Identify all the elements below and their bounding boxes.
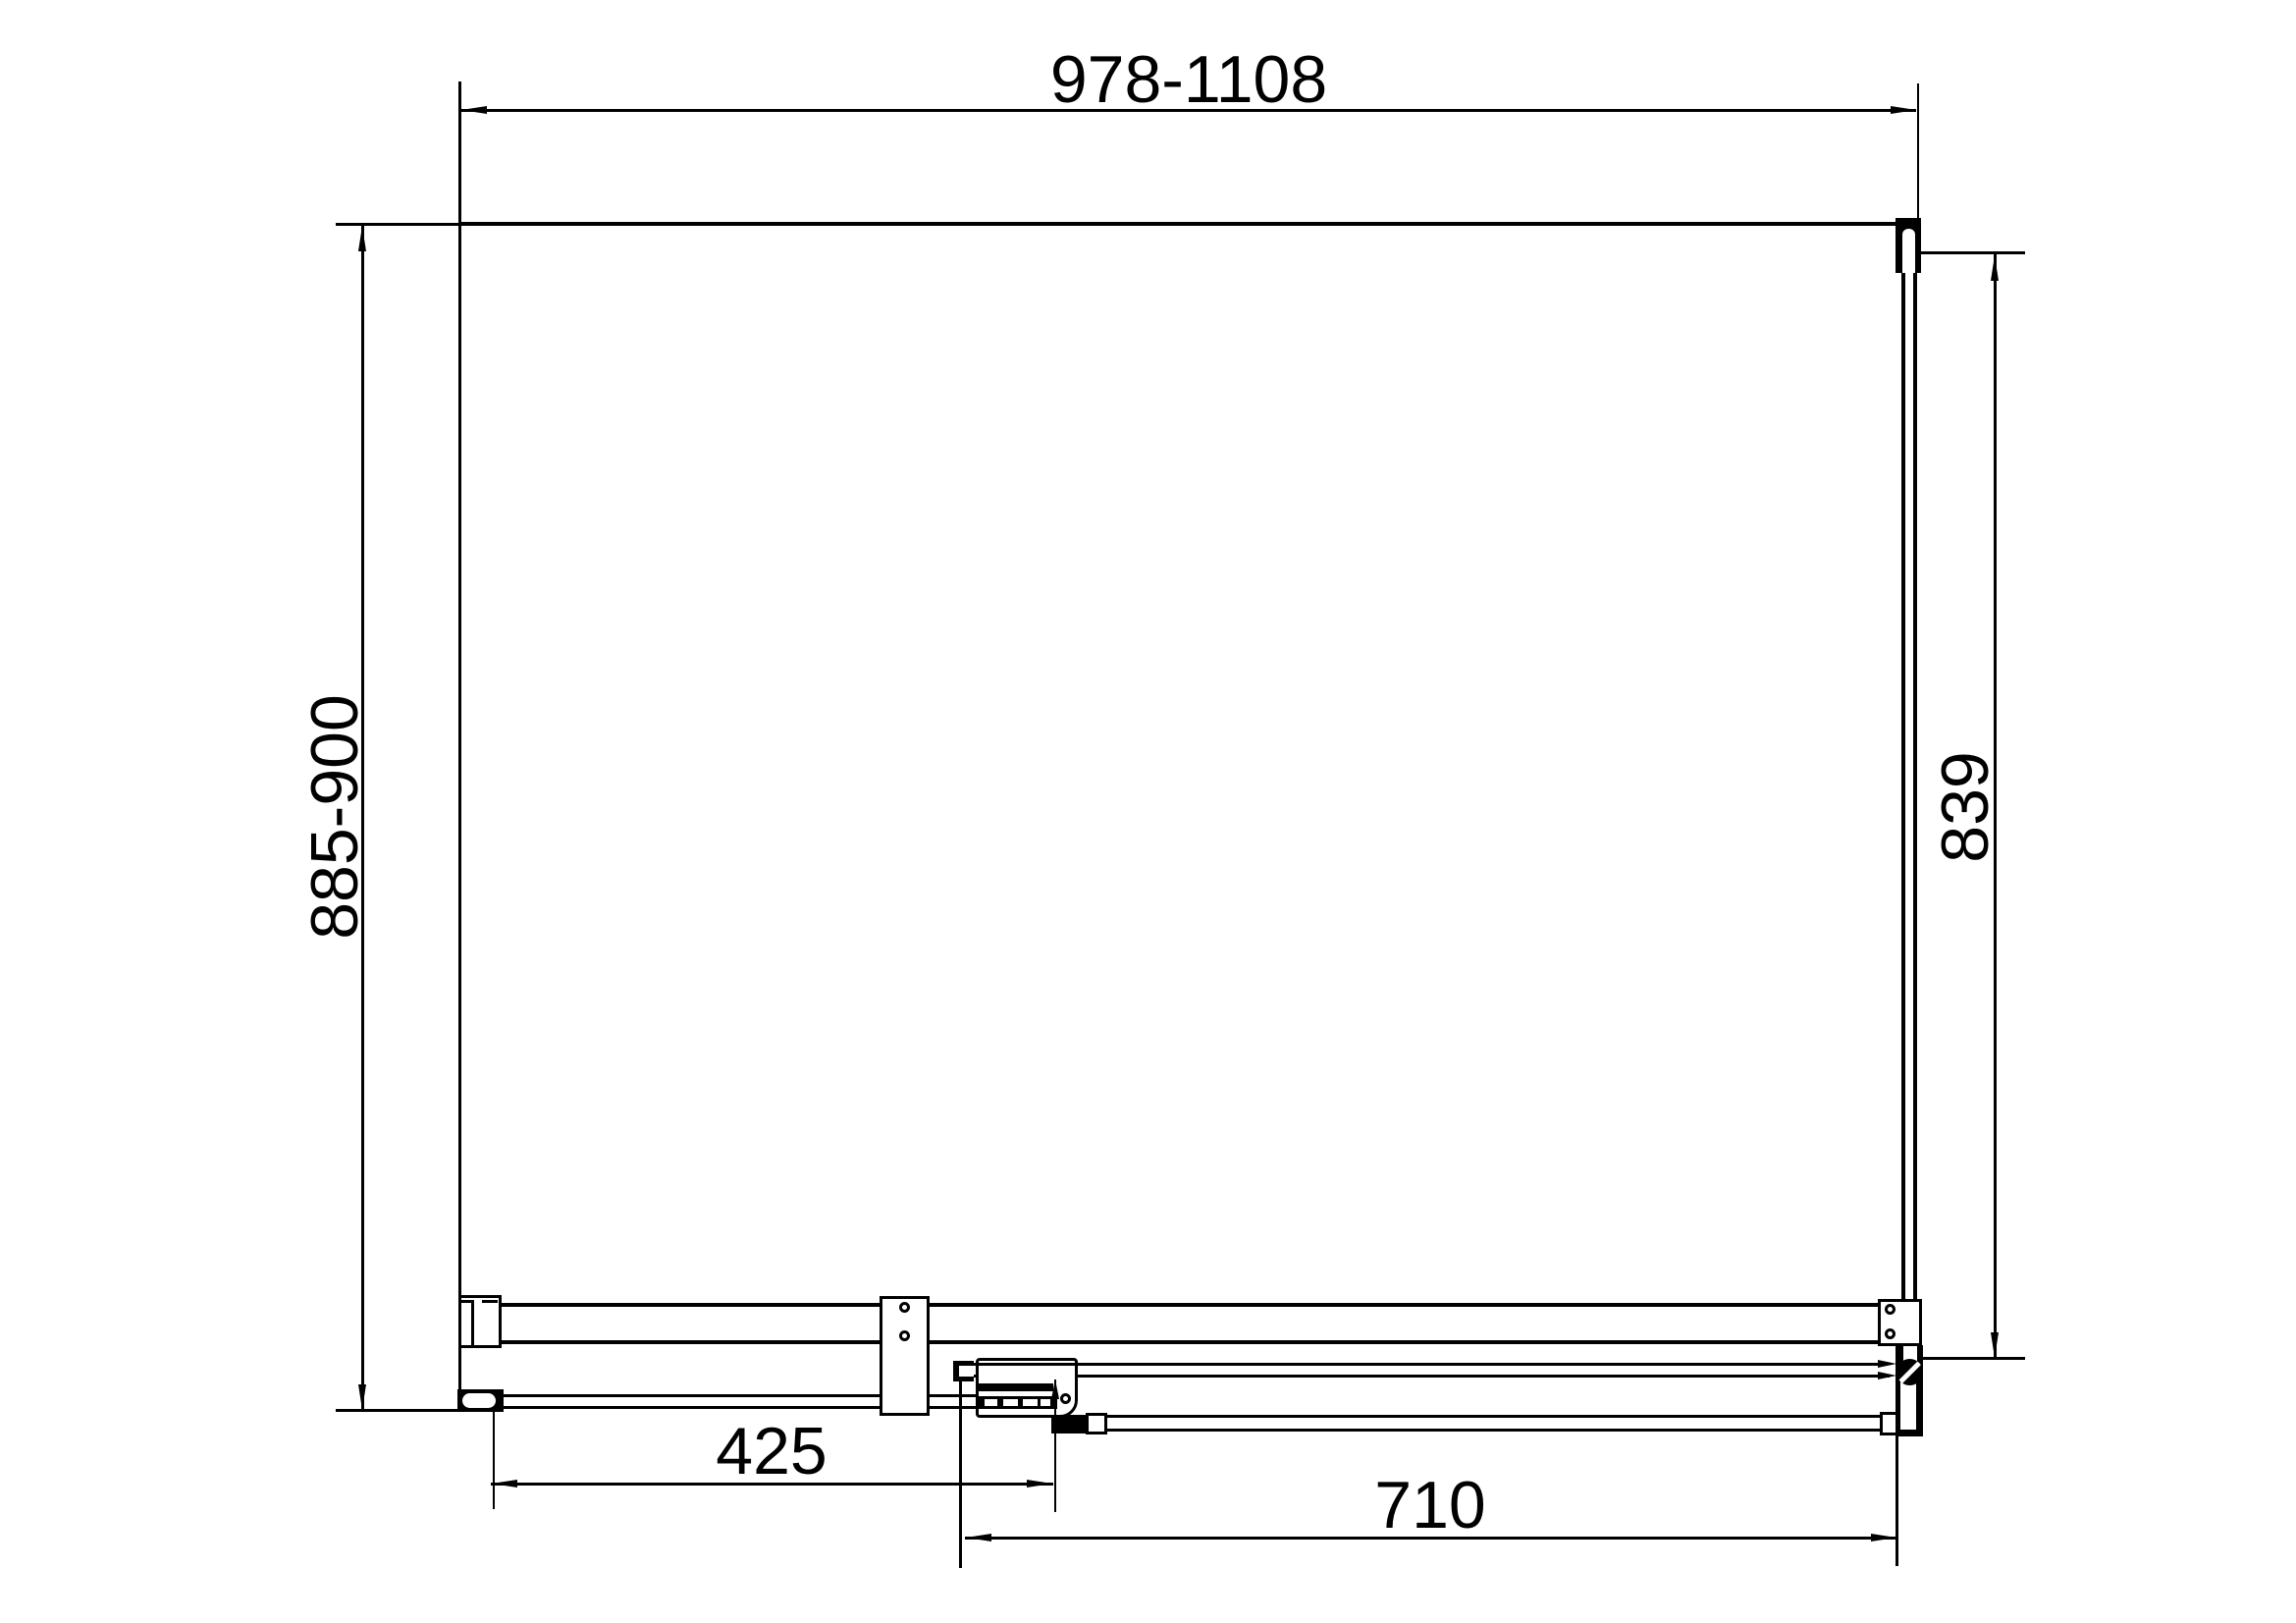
- bottom-track-dark-block: [1051, 1415, 1088, 1434]
- right-bracket-screw-hole: [1885, 1304, 1896, 1315]
- dim-side-top-extension: [1921, 251, 2025, 254]
- roller-rack-cell: [1023, 1399, 1038, 1406]
- dim-425-arrow-right-icon: [1027, 1480, 1052, 1488]
- dim-side-bottom-extension: [1923, 1357, 2025, 1360]
- dim-425-label: 425: [673, 1418, 870, 1485]
- dim-depth-arrow-top-icon: [358, 226, 366, 251]
- side-glass-inner-line: [1913, 271, 1917, 1302]
- right-door-end-arrow-icon: [1878, 1372, 1896, 1380]
- dim-425-pointer-arrow-icon: [1051, 1380, 1059, 1399]
- corner-roller-block-slot: [1900, 1380, 1916, 1430]
- center-roller-bracket: [880, 1296, 930, 1416]
- dim-side-label: 839: [1932, 709, 1999, 905]
- roller-screw: [1060, 1393, 1071, 1404]
- center-bracket-screw-hole: [899, 1302, 910, 1313]
- bottom-track-top-line: [1080, 1415, 1890, 1418]
- dim-425-arrow-left-icon: [492, 1480, 517, 1488]
- dim-425-pointer-line: [1054, 1380, 1057, 1512]
- dim-width-label: 978-1108: [1032, 46, 1346, 113]
- left-wall-profile-divider: [471, 1302, 474, 1345]
- right-door-glass-bottom-line: [967, 1375, 1890, 1378]
- dim-710-label: 710: [1332, 1472, 1528, 1539]
- roller-rack-cell: [985, 1399, 997, 1406]
- right-door-edge-profile-slot: [959, 1366, 974, 1377]
- dim-depth-arrow-bottom-icon: [358, 1384, 366, 1410]
- bottom-track-profile-left: [1086, 1413, 1107, 1434]
- corner-roller-wheel: [1896, 1359, 1923, 1385]
- center-bracket-screw-hole: [899, 1330, 910, 1341]
- top-track-front-line: [461, 1303, 1882, 1307]
- dim-710-right-extension: [1896, 1436, 1898, 1566]
- dim-width-arrow-left-icon: [461, 106, 487, 114]
- dim-depth-bottom-extension: [336, 1409, 458, 1412]
- right-bracket-screw-hole: [1885, 1328, 1896, 1339]
- dim-width-arrow-right-icon: [1891, 106, 1916, 114]
- roller-rack-cell: [1003, 1399, 1018, 1406]
- dim-depth-top-extension: [336, 223, 459, 226]
- roller-wheel-highlight: [1896, 1359, 1923, 1385]
- dim-side-arrow-bottom-icon: [1991, 1332, 1999, 1358]
- left-wall-profile-gap: [474, 1299, 482, 1304]
- top-right-wall-profile-slot: [1902, 229, 1915, 273]
- side-glass-outer-line: [1901, 271, 1905, 1302]
- top-track-rear-line: [461, 1340, 1882, 1344]
- technical-drawing-canvas: 978-1108 885-900 839 425 710: [0, 0, 2296, 1623]
- dim-425-left-extension: [493, 1412, 496, 1509]
- left-floor-profile-slot: [462, 1393, 496, 1408]
- dim-710-arrow-left-icon: [966, 1534, 991, 1542]
- dim-710-left-extension: [959, 1381, 962, 1568]
- right-door-glass-top-line: [971, 1363, 1881, 1366]
- dim-width-right-extension: [1917, 83, 1920, 218]
- dim-710-arrow-right-icon: [1871, 1534, 1896, 1542]
- dim-side-arrow-top-icon: [1991, 255, 1999, 281]
- roller-rack-cell: [1041, 1399, 1050, 1406]
- handle-assembly-bar: [979, 1383, 1053, 1391]
- dim-depth-label: 885-900: [301, 660, 368, 974]
- bottom-track-bottom-line: [1080, 1429, 1890, 1432]
- left-wall-edge: [458, 81, 462, 1394]
- top-wall-edge: [459, 222, 1898, 226]
- right-door-end-arrow-icon: [1878, 1360, 1896, 1368]
